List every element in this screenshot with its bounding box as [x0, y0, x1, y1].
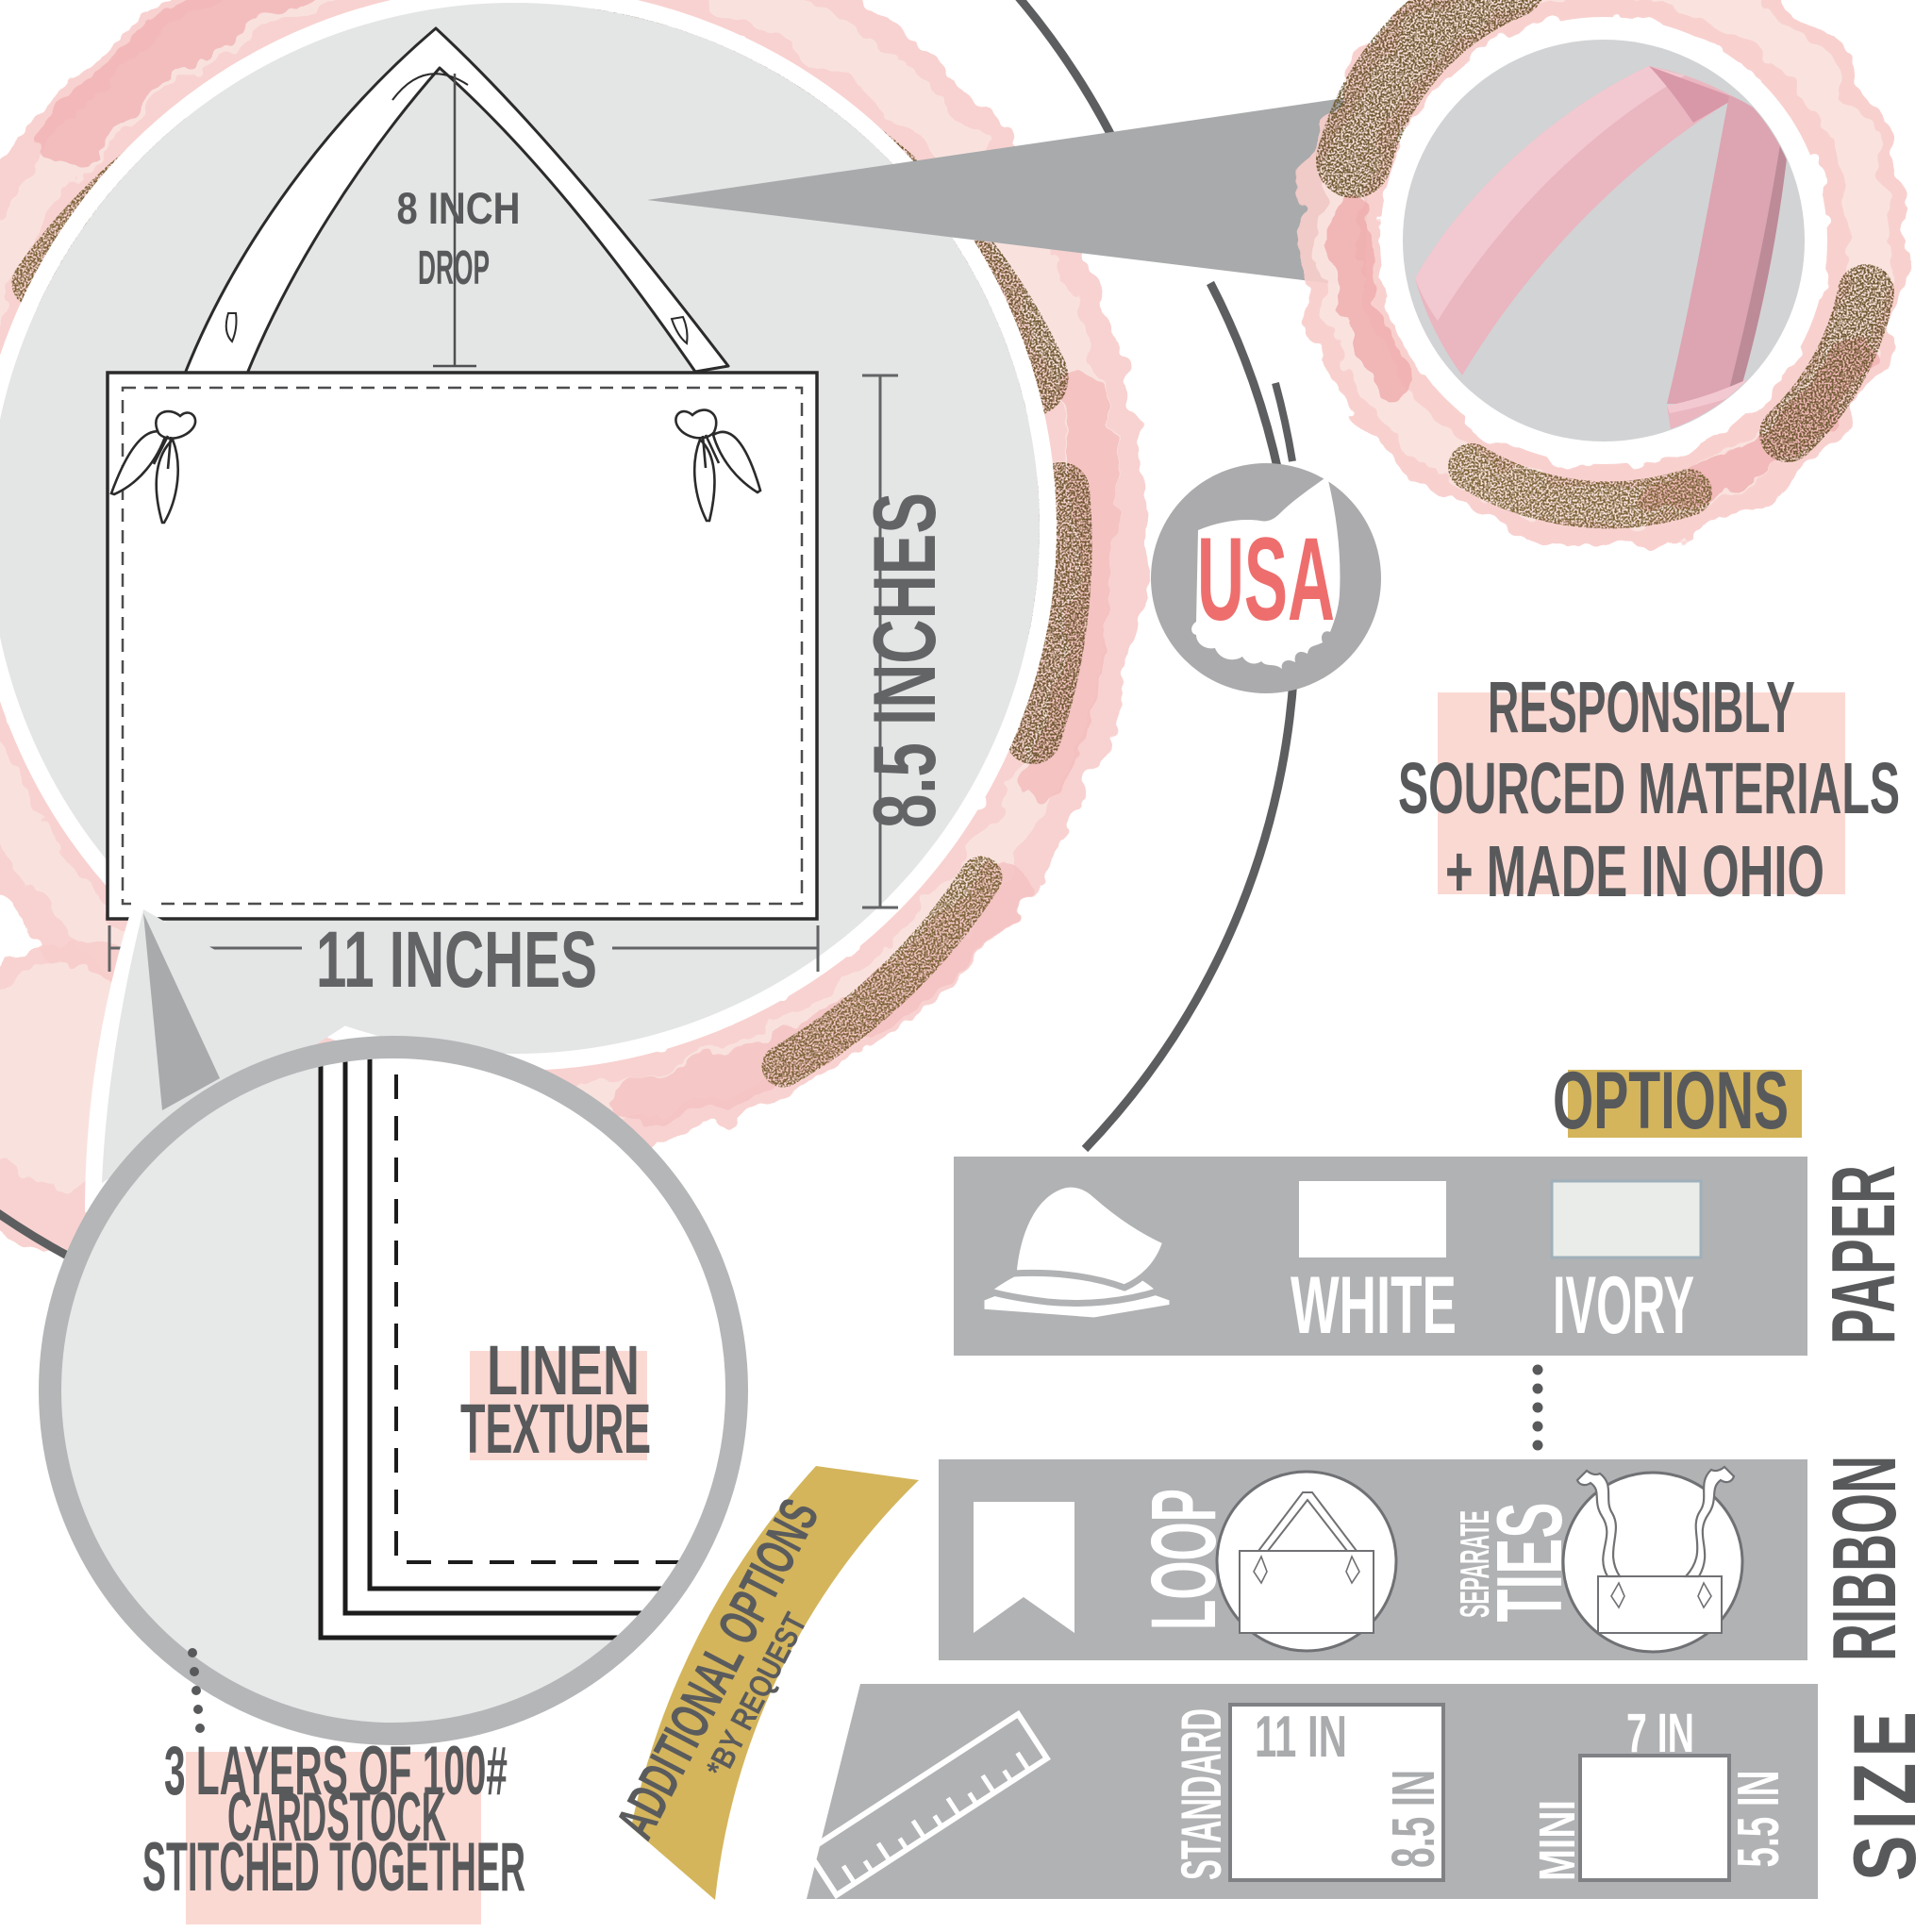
svg-text:IVORY: IVORY [1553, 1260, 1694, 1351]
svg-text:WHITE: WHITE [1291, 1260, 1457, 1351]
svg-text:USA: USA [1197, 514, 1335, 645]
svg-text:7 IN: 7 IN [1626, 1703, 1694, 1764]
svg-text:STANDARD: STANDARD [1170, 1708, 1233, 1880]
svg-text:RIBBON: RIBBON [1814, 1456, 1915, 1661]
svg-text:11 IN: 11 IN [1255, 1705, 1347, 1770]
svg-text:DROP: DROP [418, 241, 490, 294]
svg-text:+ MADE IN OHIO: + MADE IN OHIO [1445, 831, 1824, 912]
svg-text:8.5 INCHES: 8.5 INCHES [855, 492, 954, 828]
svg-text:SOURCED MATERIALS: SOURCED MATERIALS [1398, 748, 1900, 829]
svg-text:5.5 IN: 5.5 IN [1726, 1771, 1791, 1868]
svg-text:SIZE: SIZE [1835, 1706, 1932, 1881]
svg-text:8 INCH: 8 INCH [397, 183, 521, 233]
svg-text:TEXTURE: TEXTURE [460, 1390, 651, 1468]
svg-text:8.5 IN: 8.5 IN [1379, 1770, 1447, 1868]
svg-text:11 INCHES: 11 INCHES [316, 915, 597, 1004]
svg-text:RESPONSIBLY: RESPONSIBLY [1488, 667, 1795, 748]
svg-text:PAPER: PAPER [1813, 1165, 1914, 1344]
svg-text:MINI: MINI [1529, 1800, 1586, 1881]
svg-text:STITCHED TOGETHER: STITCHED TOGETHER [142, 1829, 525, 1906]
svg-text:OPTIONS: OPTIONS [1553, 1056, 1789, 1146]
